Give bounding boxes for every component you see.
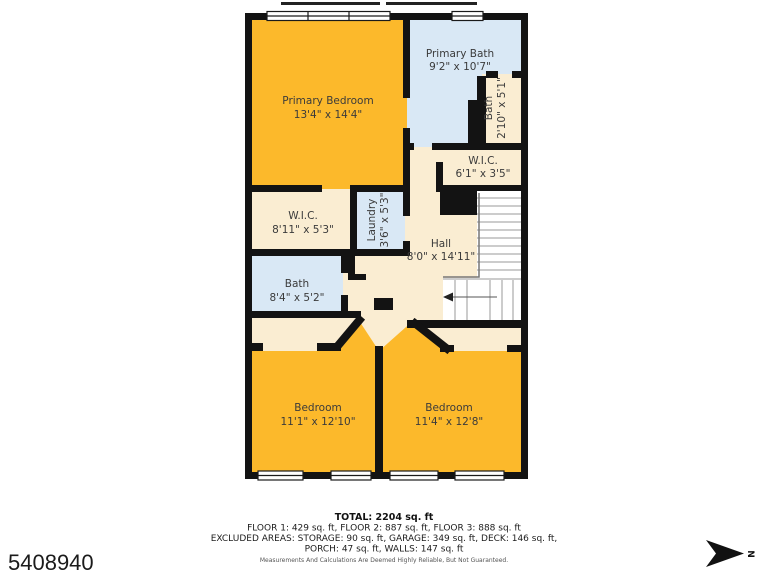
wall-below-pbed-left <box>245 185 322 192</box>
label-wic-left: W.I.C. <box>288 210 318 222</box>
dims-bedroom-left: 11'1" x 12'10" <box>280 416 355 428</box>
summary-block: TOTAL: 2204 sq. ft FLOOR 1: 429 sq. ft, … <box>211 512 558 564</box>
dims-bedroom-right: 11'4" x 12'8" <box>415 416 483 428</box>
north-arrow-icon <box>706 540 744 567</box>
wall-laundry-hall-upper <box>403 189 410 216</box>
wall-ensuite-top-b <box>512 71 521 78</box>
wall-outer-left <box>245 13 252 479</box>
summary-total: TOTAL: 2204 sq. ft <box>335 512 434 523</box>
wall-below-wic-left <box>245 249 357 256</box>
dims-bath-left: 8'4" x 5'2" <box>269 292 324 304</box>
dims-wic-left: 8'11" x 5'3" <box>272 224 334 236</box>
floor-plan-page: Primary Bedroom 13'4" x 14'4" Primary Ba… <box>0 0 768 576</box>
north-arrow-label: N <box>745 550 755 558</box>
dims-primary-bath: 9'2" x 10'7" <box>429 61 491 73</box>
window-top-triple <box>267 12 390 21</box>
label-bedroom-left: Bedroom <box>294 402 342 414</box>
wall-outer-right <box>521 13 528 479</box>
window-bottom-2 <box>331 471 371 480</box>
label-bedroom-right: Bedroom <box>425 402 473 414</box>
window-bottom-1 <box>258 471 303 480</box>
summary-excluded-1: EXCLUDED AREAS: STORAGE: 90 sq. ft, GARA… <box>211 534 558 544</box>
label-laundry: Laundry <box>366 199 378 242</box>
wall-below-pbath-left <box>403 143 414 150</box>
summary-disclaimer: Measurements And Calculations Are Deemed… <box>260 557 508 564</box>
wall-below-bath-left <box>245 311 361 318</box>
wall-alcove-right-b <box>507 345 524 352</box>
label-bath-ensuite: Bath <box>483 96 495 120</box>
window-bottom-4 <box>455 471 504 480</box>
wall-below-pbed-right <box>350 185 410 192</box>
label-hall: Hall <box>431 238 451 250</box>
label-wic-right: W.I.C. <box>468 155 498 167</box>
wall-pbed-pbath-upper <box>403 13 410 98</box>
wall-bedroom-divider <box>375 346 383 472</box>
deck-edge <box>281 2 477 5</box>
summary-floors: FLOOR 1: 429 sq. ft, FLOOR 2: 887 sq. ft… <box>247 524 521 534</box>
wall-stair-block <box>440 191 477 215</box>
label-primary-bath: Primary Bath <box>426 48 494 60</box>
wall-pbed-pbath-lower <box>403 128 410 189</box>
wall-bath-left-upper <box>341 253 348 273</box>
window-bottom-3 <box>390 471 438 480</box>
wall-hall-pillar <box>374 298 393 310</box>
wall-below-wic-right <box>436 185 521 191</box>
label-bath-left: Bath <box>285 278 309 290</box>
summary-excluded-2: PORCH: 47 sq. ft, WALLS: 147 sq. ft <box>305 545 464 555</box>
dims-hall: 8'0" x 14'11" <box>407 251 475 263</box>
wall-wic-laundry <box>350 185 357 256</box>
north-arrow: N <box>706 540 755 567</box>
window-top-right <box>452 12 483 21</box>
stairs-upper-flight <box>477 190 521 280</box>
wall-alcove-left-a <box>250 343 263 351</box>
dims-bath-ensuite: 2'10" x 5'1" <box>496 77 508 139</box>
floor-plan: Primary Bedroom 13'4" x 14'4" Primary Ba… <box>0 0 768 576</box>
wall-vestibule-stub-h <box>348 274 366 280</box>
wall-below-laundry <box>350 249 410 256</box>
label-primary-bedroom: Primary Bedroom <box>282 95 373 107</box>
dims-primary-bedroom: 13'4" x 14'4" <box>294 109 362 121</box>
dims-wic-right: 6'1" x 3'5" <box>455 168 510 180</box>
dims-laundry: 3'6" x 5'3" <box>379 192 391 247</box>
wall-below-pbath-right <box>432 143 524 150</box>
listing-id: 5408940 <box>8 550 94 575</box>
